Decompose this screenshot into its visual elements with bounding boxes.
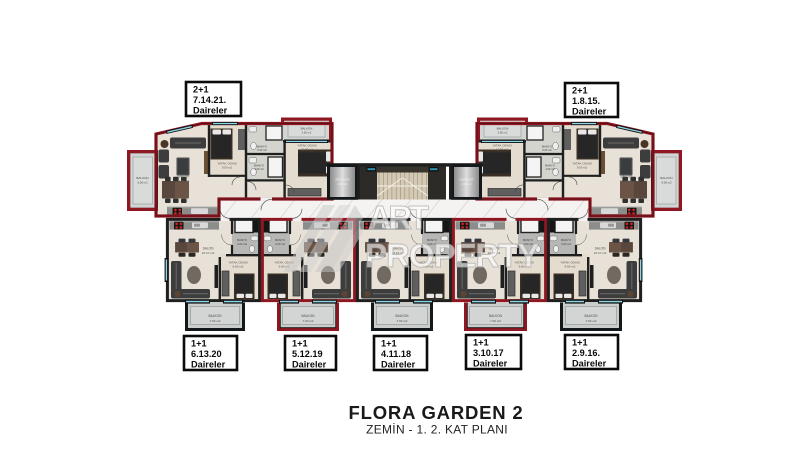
svg-text:SALON: SALON xyxy=(620,175,632,179)
svg-text:13.00 m2: 13.00 m2 xyxy=(301,148,313,152)
svg-text:1+1: 1+1 xyxy=(292,338,308,348)
svg-text:1+1: 1+1 xyxy=(191,338,207,348)
svg-text:6.00 m2: 6.00 m2 xyxy=(661,181,672,185)
svg-text:4.00 m2: 4.00 m2 xyxy=(254,167,264,171)
svg-text:Daireler: Daireler xyxy=(381,360,416,370)
svg-text:6.00 m2: 6.00 m2 xyxy=(137,181,148,185)
svg-text:BALKON: BALKON xyxy=(209,314,223,318)
svg-text:24.00 m2: 24.00 m2 xyxy=(177,179,190,183)
svg-text:1+1: 1+1 xyxy=(572,337,588,347)
svg-text:Daireler: Daireler xyxy=(473,359,508,369)
svg-text:BANYO: BANYO xyxy=(545,164,556,168)
svg-text:4.00 m2: 4.00 m2 xyxy=(275,242,285,246)
svg-text:Daireler: Daireler xyxy=(191,360,226,370)
svg-text:4.11.18: 4.11.18 xyxy=(381,349,411,359)
svg-text:1+1: 1+1 xyxy=(473,337,489,347)
svg-text:BANYO: BANYO xyxy=(254,164,265,168)
svg-text:BANYO: BANYO xyxy=(237,238,248,242)
svg-text:SALON: SALON xyxy=(177,175,189,179)
svg-text:6.00 m2: 6.00 m2 xyxy=(257,148,267,152)
svg-text:3.50 m2: 3.50 m2 xyxy=(498,131,508,135)
svg-text:1+1: 1+1 xyxy=(381,338,397,348)
svg-text:7.00 m2: 7.00 m2 xyxy=(397,319,408,323)
svg-text:BALKON: BALKON xyxy=(136,176,148,180)
svg-text:Daireler: Daireler xyxy=(572,359,607,369)
svg-text:4.00 m2: 4.00 m2 xyxy=(545,167,555,171)
svg-text:Daireler: Daireler xyxy=(292,360,327,370)
svg-text:22.10 m2: 22.10 m2 xyxy=(202,251,215,255)
svg-text:13.00 m2: 13.00 m2 xyxy=(496,148,508,152)
svg-text:BALKON: BALKON xyxy=(396,314,410,318)
svg-text:7.14.21.: 7.14.21. xyxy=(193,95,226,105)
svg-text:BALKON: BALKON xyxy=(497,127,509,131)
svg-text:3.10.17: 3.10.17 xyxy=(473,348,504,358)
svg-text:9.00 m2: 9.00 m2 xyxy=(222,166,233,170)
svg-text:ART: ART xyxy=(368,199,429,236)
svg-text:4.00 m2: 4.00 m2 xyxy=(237,242,247,246)
svg-text:BANYO: BANYO xyxy=(275,238,286,242)
svg-text:7.00 m2: 7.00 m2 xyxy=(210,319,221,323)
svg-text:BANYO: BANYO xyxy=(257,145,268,149)
svg-text:2+1: 2+1 xyxy=(193,84,209,94)
svg-text:6.00 m2: 6.00 m2 xyxy=(542,148,552,152)
svg-text:BANYO: BANYO xyxy=(561,238,572,242)
svg-text:7.00 m2: 7.00 m2 xyxy=(303,319,314,323)
svg-text:Daireler: Daireler xyxy=(193,106,228,116)
svg-text:ASANSÖR: ASANSÖR xyxy=(335,178,349,182)
svg-text:7.00 m2: 7.00 m2 xyxy=(586,319,597,323)
svg-text:9.00 m2: 9.00 m2 xyxy=(577,166,588,170)
svg-text:2+1: 2+1 xyxy=(572,85,588,95)
svg-text:7.00 m2: 7.00 m2 xyxy=(490,319,501,323)
svg-text:8.60 m2: 8.60 m2 xyxy=(233,265,244,269)
svg-text:22.10 m2: 22.10 m2 xyxy=(594,251,607,255)
svg-text:BALKON: BALKON xyxy=(585,314,599,318)
svg-text:5.12.19: 5.12.19 xyxy=(292,349,323,359)
svg-text:1.8.15.: 1.8.15. xyxy=(572,96,600,106)
svg-text:BALKON: BALKON xyxy=(301,127,313,131)
svg-text:3.50 m2: 3.50 m2 xyxy=(302,131,312,135)
svg-text:BALKON: BALKON xyxy=(302,314,316,318)
svg-text:9.60 m2: 9.60 m2 xyxy=(565,265,576,269)
svg-text:2.9.16.: 2.9.16. xyxy=(572,348,600,358)
svg-text:4.00 m2: 4.00 m2 xyxy=(462,182,472,186)
svg-text:PROPERTY: PROPERTY xyxy=(365,237,540,274)
svg-text:BANYO: BANYO xyxy=(542,145,553,149)
svg-text:24.00 m2: 24.00 m2 xyxy=(620,179,633,183)
svg-text:6.13.20: 6.13.20 xyxy=(191,349,222,359)
svg-text:ZEMİN - 1. 2. KAT PLANI: ZEMİN - 1. 2. KAT PLANI xyxy=(366,423,508,437)
svg-text:BALKON: BALKON xyxy=(660,176,672,180)
svg-text:4.00 m2: 4.00 m2 xyxy=(561,242,571,246)
svg-text:ASANSÖR: ASANSÖR xyxy=(459,178,473,182)
svg-text:4.00 m2: 4.00 m2 xyxy=(338,182,348,186)
svg-text:BALKON: BALKON xyxy=(489,314,503,318)
svg-text:FLORA GARDEN 2: FLORA GARDEN 2 xyxy=(349,402,524,423)
svg-text:Daireler: Daireler xyxy=(572,107,607,117)
